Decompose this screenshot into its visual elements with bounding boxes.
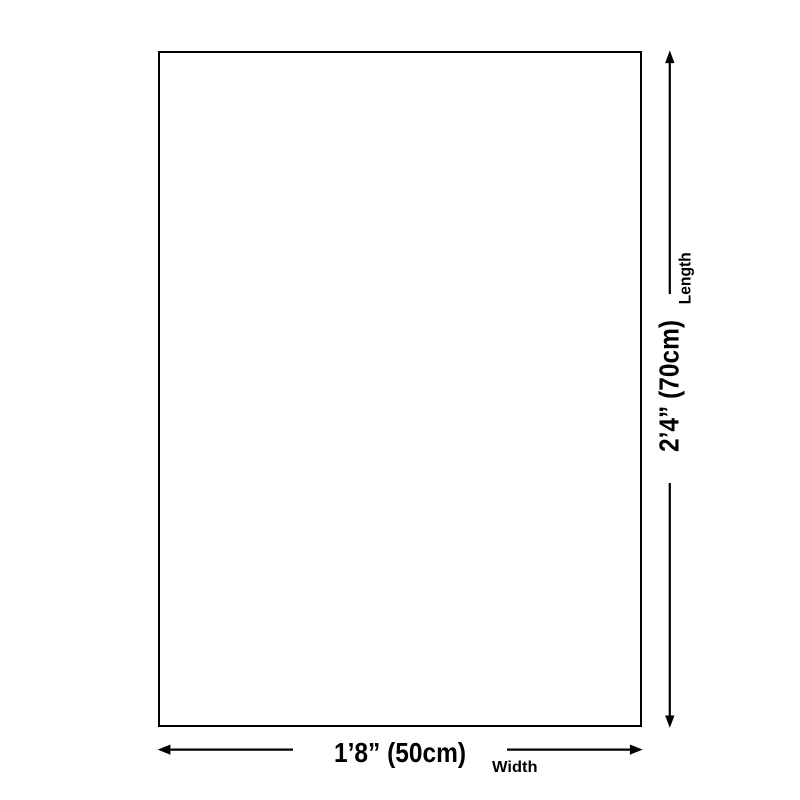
svg-text:1’8” (50cm): 1’8” (50cm) [334,737,466,768]
svg-text:Width: Width [492,759,538,776]
svg-text:2’4” (70cm): 2’4” (70cm) [653,320,684,452]
svg-text:Length: Length [675,252,694,304]
